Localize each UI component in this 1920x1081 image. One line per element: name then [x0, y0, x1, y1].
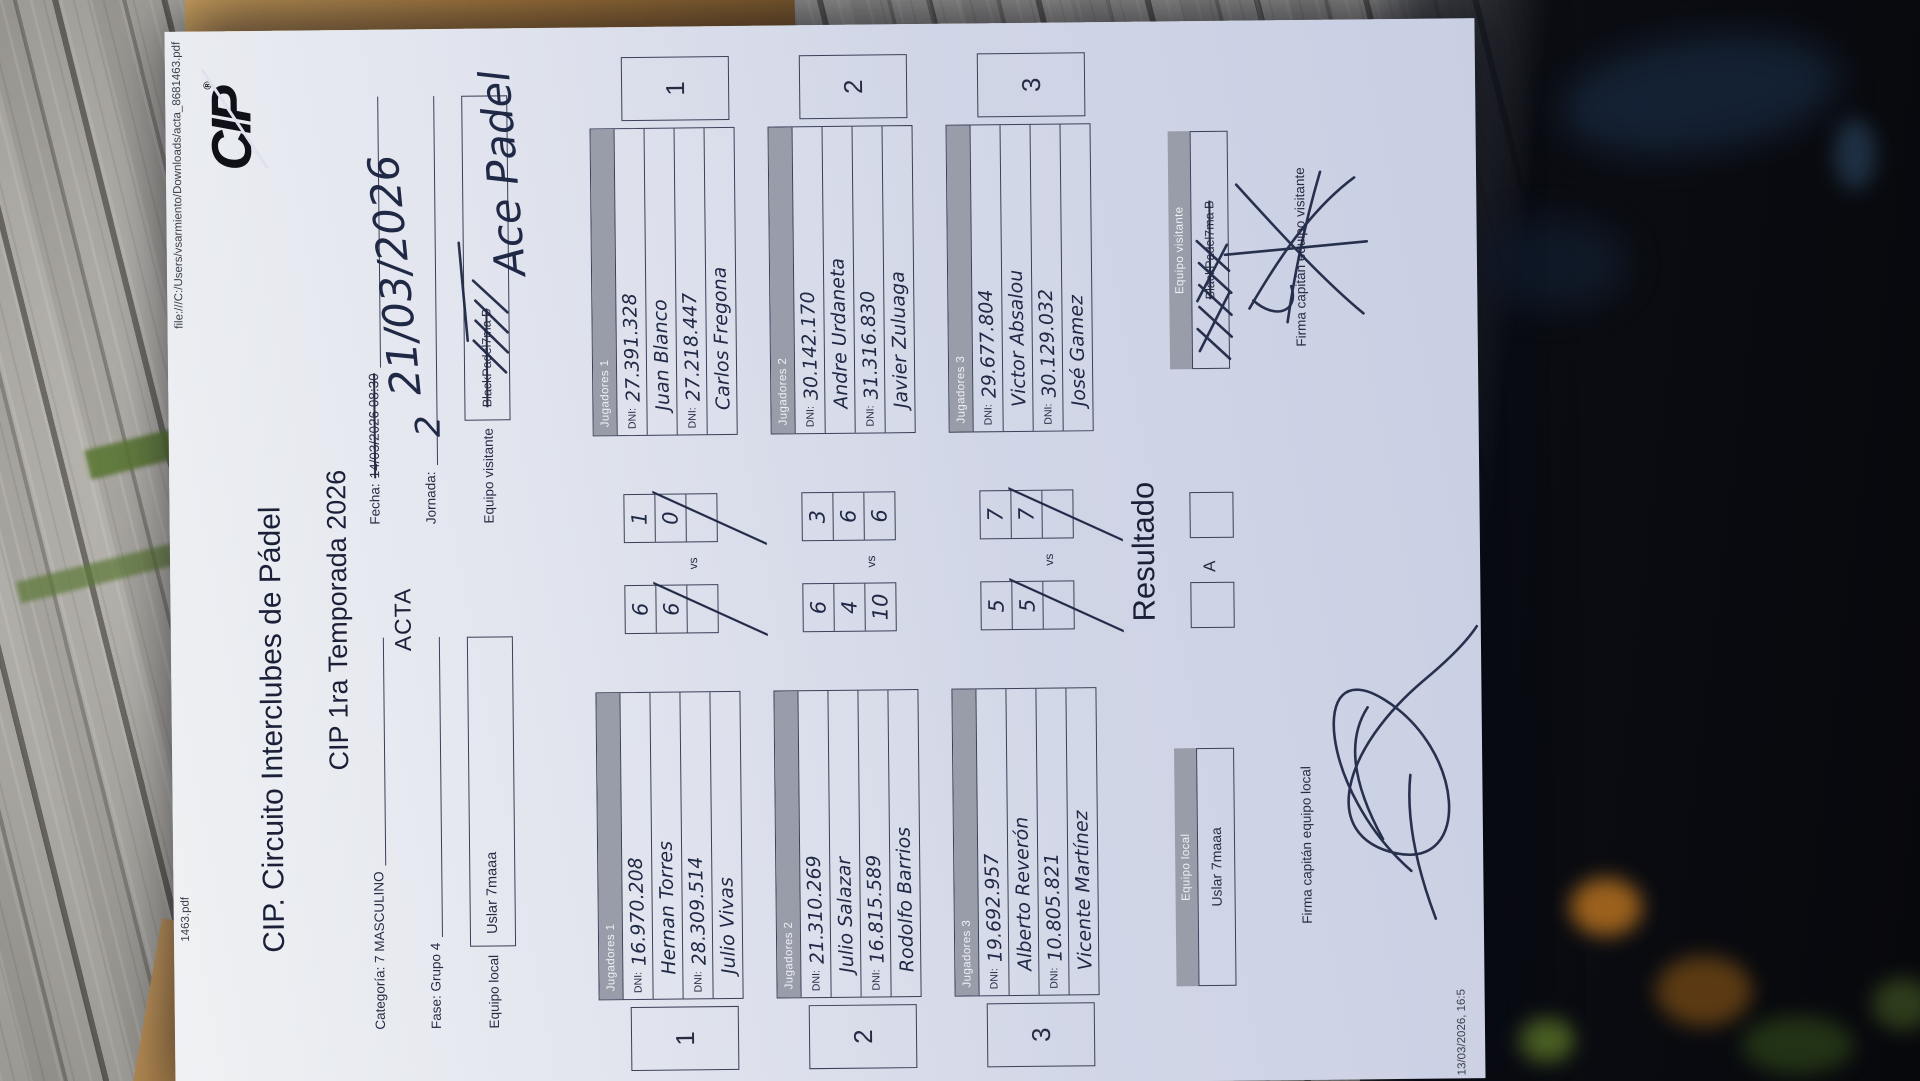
firma-capitan-visitante-label: Firma capitán equipo visitante — [1291, 82, 1310, 432]
player-dni: 27.218.447 — [678, 292, 704, 402]
local-players-table: Jugadores 2 DNI:21.310.269 Julio Salazar… — [773, 689, 921, 999]
vs-label: vs — [686, 542, 718, 584]
player-dni: 30.129.032 — [1034, 288, 1060, 398]
player-name: Julio Vivas — [715, 877, 740, 993]
player-dni-row: DNI:19.692.957 — [975, 689, 1008, 995]
player-dni-row: DNI:27.218.447 — [674, 128, 707, 434]
player-name-row: Hernan Torres — [649, 693, 682, 999]
player-dni-row: DNI:28.309.514 — [679, 692, 712, 998]
player-name-row: Julio Salazar — [827, 691, 860, 997]
match-block-3: 3 Jugadores 3 DNI:19.692.957 Alberto Rev… — [945, 52, 1120, 1068]
jugadores-bar: Jugadores 2 — [774, 691, 800, 997]
document-title: CIP. Circuito Interclubes de Pádel — [253, 506, 292, 953]
resultado-equipo-visitante: Equipo visitante BlackPadel7ma B — [1168, 131, 1230, 370]
player-dni-row: DNI:21.310.269 — [797, 691, 830, 997]
player-name-row: Rodolfo Barrios — [887, 690, 920, 996]
equipo-local-result-box: Uslar 7maaa — [1196, 748, 1236, 986]
player-dni: 30.142.170 — [796, 291, 822, 401]
set-score-cell: 5 — [1011, 582, 1042, 629]
bokeh-light — [1468, 218, 1628, 310]
equipo-visitante-label: Equipo visitante — [480, 428, 496, 523]
signature-local — [1409, 775, 1436, 919]
player-name-row: Vicente Martínez — [1065, 688, 1098, 994]
cip-logo: CIP® — [203, 81, 260, 171]
dni-label: DNI: — [1042, 404, 1054, 425]
set-score-cell: 7 — [980, 491, 1010, 538]
match-block-2: 2 Jugadores 2 DNI:21.310.269 Julio Salaz… — [767, 54, 942, 1070]
player-dni: 16.815.589 — [862, 854, 888, 964]
handwritten-jornada: 2 — [409, 415, 449, 437]
photo-scene: 1463.pdf file:///C:/Users/vsarmiento/Dow… — [0, 0, 1920, 1081]
dni-label: DNI: — [982, 404, 994, 425]
score-area: 5 5 vs 7 7 — [979, 438, 1076, 681]
fase-label: Fase: Grupo 4 — [428, 943, 444, 1029]
bokeh-light — [1570, 878, 1642, 936]
local-set-scores: 5 5 — [980, 580, 1075, 630]
player-dni-row: DNI:16.970.208 — [619, 693, 652, 999]
bokeh-light — [1518, 1018, 1574, 1062]
player-dni-row: DNI:30.142.170 — [792, 127, 825, 433]
equipo-visitante-struck-result: BlackPadel7ma B — [1202, 201, 1217, 300]
resultado-heading: Resultado — [1120, 22, 1167, 1081]
player-name-row: José Gamez — [1060, 124, 1093, 430]
equipo-local-bar: Equipo local — [1174, 748, 1198, 986]
dni-label: DNI: — [1048, 968, 1060, 989]
equipo-visitante-struck-value: BlackPadel7ma B — [479, 308, 494, 407]
dni-label: DNI: — [686, 407, 698, 428]
bokeh-light — [1742, 1016, 1854, 1074]
fecha-struck-value: 14/03/2026 08:30 — [366, 373, 382, 478]
field-categoria: Categoría: 7 MASCULINO — [367, 638, 388, 1030]
signature-visitante — [1253, 286, 1293, 312]
visitor-set-scores: 7 7 — [979, 489, 1074, 539]
resultado-checkbox-visitante — [1189, 492, 1233, 538]
local-players-table: Jugadores 3 DNI:19.692.957 Alberto Rever… — [951, 687, 1099, 997]
player-dni-row: DNI:30.129.032 — [1030, 125, 1063, 431]
set-score-cell: 6 — [803, 584, 833, 631]
set-score-cell: 6 — [832, 493, 863, 540]
categoria-line — [367, 638, 386, 866]
player-name-row: Carlos Fregona — [704, 128, 737, 434]
dni-label: DNI: — [804, 406, 816, 427]
player-name: Vicente Martínez — [1070, 810, 1097, 988]
jugadores-bar: Jugadores 2 — [769, 127, 795, 433]
player-name: Rodolfo Barrios — [892, 827, 919, 991]
player-dni: 27.391.328 — [618, 293, 644, 403]
set-score-cell-slashed — [685, 494, 716, 541]
bokeh-light — [1834, 118, 1876, 190]
fase-line — [423, 637, 443, 937]
dni-label: DNI: — [870, 969, 882, 990]
player-dni: 10.805.821 — [1040, 852, 1066, 962]
player-name: Juan Blanco — [649, 299, 675, 429]
player-name-row: Alberto Reverón — [1005, 689, 1038, 995]
field-fase: Fase: Grupo 4 — [423, 637, 444, 1029]
vs-label: vs — [1042, 538, 1074, 580]
player-dni: 19.692.957 — [980, 853, 1006, 963]
set-score-cell-slashed — [1042, 581, 1073, 628]
player-name: Hernan Torres — [654, 841, 680, 993]
dni-label: DNI: — [810, 970, 822, 991]
equipo-local-value: Uslar 7maaa — [484, 852, 501, 934]
player-name-row: Julio Vivas — [709, 692, 742, 998]
dni-label: DNI: — [692, 971, 704, 992]
visitor-players-table: Jugadores 1 DNI:27.391.328 Juan Blanco D… — [590, 127, 738, 437]
score-area: 6 4 10 vs 3 6 6 — [801, 440, 898, 683]
set-score-cell: 7 — [1010, 491, 1041, 538]
set-score-cell-slashed — [686, 585, 717, 632]
categoria-label: Categoría: 7 MASCULINO — [371, 871, 388, 1029]
player-name-row: Andre Urdaneta — [822, 127, 855, 433]
visitor-players-table: Jugadores 2 DNI:30.142.170 Andre Urdanet… — [768, 125, 916, 435]
jugadores-bar: Jugadores 1 — [596, 693, 622, 999]
vs-label: vs — [864, 540, 896, 582]
player-dni-row: DNI:16.815.589 — [857, 690, 890, 996]
acta-paper-document: 1463.pdf file:///C:/Users/vsarmiento/Dow… — [164, 18, 1485, 1081]
local-set-scores: 6 4 10 — [802, 582, 897, 632]
player-name: Alberto Reverón — [1010, 816, 1037, 989]
match-number-left: 2 — [809, 1004, 918, 1069]
player-name: Javier Zuluaga — [886, 271, 912, 427]
cip-logo-text: CIP — [199, 89, 263, 171]
player-dni-row: DNI:31.316.830 — [852, 126, 885, 432]
jugadores-bar: Jugadores 3 — [952, 689, 978, 995]
fecha-label: Fecha: — [367, 483, 382, 524]
player-dni: 28.309.514 — [684, 856, 710, 966]
local-set-scores: 6 6 — [624, 584, 719, 634]
player-dni: 16.970.208 — [624, 857, 650, 967]
document-subtitle: CIP 1ra Temporada 2026 — [318, 150, 359, 1081]
equipo-local-result-value: Uslar 7maaa — [1208, 827, 1225, 907]
set-score-cell: 6 — [863, 492, 894, 539]
resultado-option-a: A — [1200, 561, 1220, 573]
print-footer-datetime: 13/03/2026, 16:5 — [1456, 989, 1469, 1075]
dni-label: DNI: — [988, 968, 1000, 989]
visitor-players-table: Jugadores 3 DNI:29.677.804 Victor Absalo… — [946, 123, 1094, 433]
jugadores-bar: Jugadores 1 — [591, 129, 617, 435]
equipo-local-box: Uslar 7maaa — [467, 636, 516, 947]
visitor-set-scores: 3 6 6 — [801, 491, 896, 541]
equipo-visitante-result-box: BlackPadel7ma B — [1190, 131, 1230, 369]
firma-capitan-local-label: Firma capitán equipo local — [1297, 680, 1315, 1010]
set-score-cell-slashed — [1041, 490, 1072, 537]
player-dni: 29.677.804 — [974, 289, 1000, 399]
jugadores-bar: Jugadores 3 — [947, 125, 973, 431]
match-number-left: 3 — [987, 1002, 1096, 1067]
player-dni: 31.316.830 — [856, 290, 882, 400]
match-number-left: 1 — [631, 1006, 740, 1071]
set-score-cell: 10 — [864, 583, 895, 630]
print-header-filename: 1463.pdf — [180, 897, 192, 942]
set-score-cell: 1 — [624, 495, 654, 542]
field-equipo-local: Equipo local Uslar 7maaa — [467, 636, 517, 1028]
player-name: José Gamez — [1065, 295, 1091, 425]
player-name-row: Javier Zuluaga — [882, 126, 915, 432]
player-name: Julio Salazar — [832, 857, 858, 991]
set-score-cell: 6 — [655, 585, 686, 632]
set-score-cell: 5 — [981, 582, 1011, 629]
set-score-cell: 4 — [833, 584, 864, 631]
match-number-right: 2 — [799, 54, 908, 119]
bokeh-light — [1656, 956, 1752, 1026]
jornada-line — [417, 96, 438, 466]
equipo-local-label: Equipo local — [486, 955, 502, 1029]
registered-mark-icon: ® — [202, 81, 214, 89]
player-dni-row: DNI:29.677.804 — [970, 125, 1003, 431]
set-score-cell: 3 — [802, 493, 832, 540]
player-dni-row: DNI:27.391.328 — [614, 129, 647, 435]
set-score-cell: 0 — [654, 494, 685, 541]
resultado-checkbox-local — [1190, 582, 1234, 628]
player-name-row: Juan Blanco — [644, 129, 677, 435]
visitor-set-scores: 1 0 — [623, 493, 718, 543]
local-players-table: Jugadores 1 DNI:16.970.208 Hernan Torres… — [595, 691, 743, 1001]
player-dni: 21.310.269 — [802, 855, 828, 965]
signature-local — [1333, 626, 1480, 871]
player-name: Carlos Fregona — [708, 266, 734, 428]
dni-label: DNI: — [632, 972, 644, 993]
dni-label: DNI: — [864, 405, 876, 426]
print-header-url: file:///C:/Users/vsarmiento/Downloads/ac… — [171, 42, 186, 329]
jornada-label: Jornada: — [423, 472, 439, 525]
player-name-row: Victor Absalou — [1000, 125, 1033, 431]
set-score-cell: 6 — [625, 586, 655, 633]
signature-local — [1355, 707, 1383, 839]
match-number-right: 3 — [977, 52, 1086, 117]
score-area: 6 6 vs 1 0 — [623, 442, 720, 685]
player-dni-row: DNI:10.805.821 — [1035, 688, 1068, 994]
dni-label: DNI: — [626, 408, 638, 429]
player-name: Victor Absalou — [1004, 269, 1030, 425]
player-name: Andre Urdaneta — [826, 258, 853, 427]
equipo-visitante-bar: Equipo visitante — [1168, 131, 1192, 369]
match-block-1: 1 Jugadores 1 DNI:16.970.208 Hernan Torr… — [589, 56, 764, 1072]
match-number-right: 1 — [621, 56, 730, 121]
resultado-equipo-local: Equipo local Uslar 7maaa — [1174, 748, 1236, 987]
